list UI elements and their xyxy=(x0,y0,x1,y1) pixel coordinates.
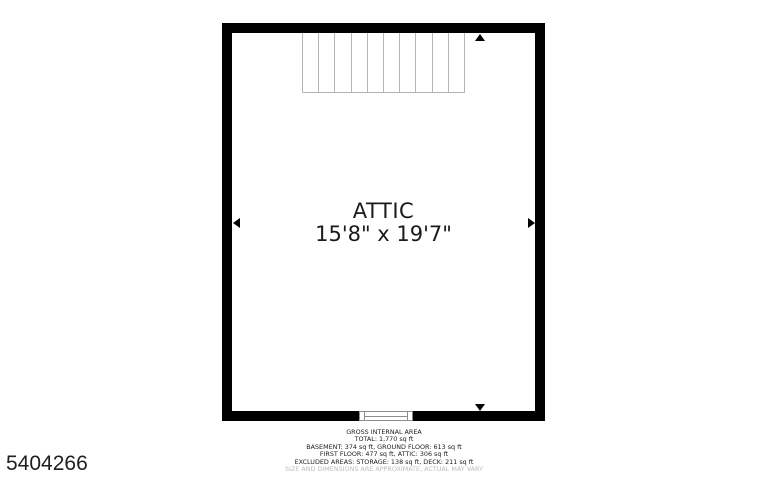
stair-tread xyxy=(335,33,351,92)
window-frame-line-left xyxy=(364,412,365,420)
stair-tread xyxy=(352,33,368,92)
room-dimensions: 15'8" x 19'7" xyxy=(222,223,545,246)
room-name: ATTIC xyxy=(222,200,545,223)
stair-tread xyxy=(303,33,319,92)
listing-id: 5404266 xyxy=(6,452,88,476)
dimension-arrow-up-icon xyxy=(475,34,485,41)
stair-tread xyxy=(416,33,432,92)
window-center-line xyxy=(364,416,408,417)
stair-tread xyxy=(433,33,449,92)
room-label: ATTIC 15'8" x 19'7" xyxy=(222,200,545,246)
floorplan-page: ATTIC 15'8" x 19'7" GROSS INTERNAL AREA … xyxy=(0,0,768,480)
stair-tread xyxy=(319,33,335,92)
stair-tread xyxy=(400,33,416,92)
stair-tread xyxy=(384,33,400,92)
window-frame-line-right xyxy=(407,412,408,420)
area-summary: GROSS INTERNAL AREA TOTAL: 1,770 sq ft B… xyxy=(0,429,768,473)
window-symbol xyxy=(359,411,413,421)
staircase xyxy=(302,33,465,93)
area-summary-disclaimer: SIZE AND DIMENSIONS ARE APPROXIMATE, ACT… xyxy=(0,466,768,473)
dimension-arrow-down-icon xyxy=(475,404,485,411)
stair-tread xyxy=(449,33,464,92)
stair-tread xyxy=(368,33,384,92)
